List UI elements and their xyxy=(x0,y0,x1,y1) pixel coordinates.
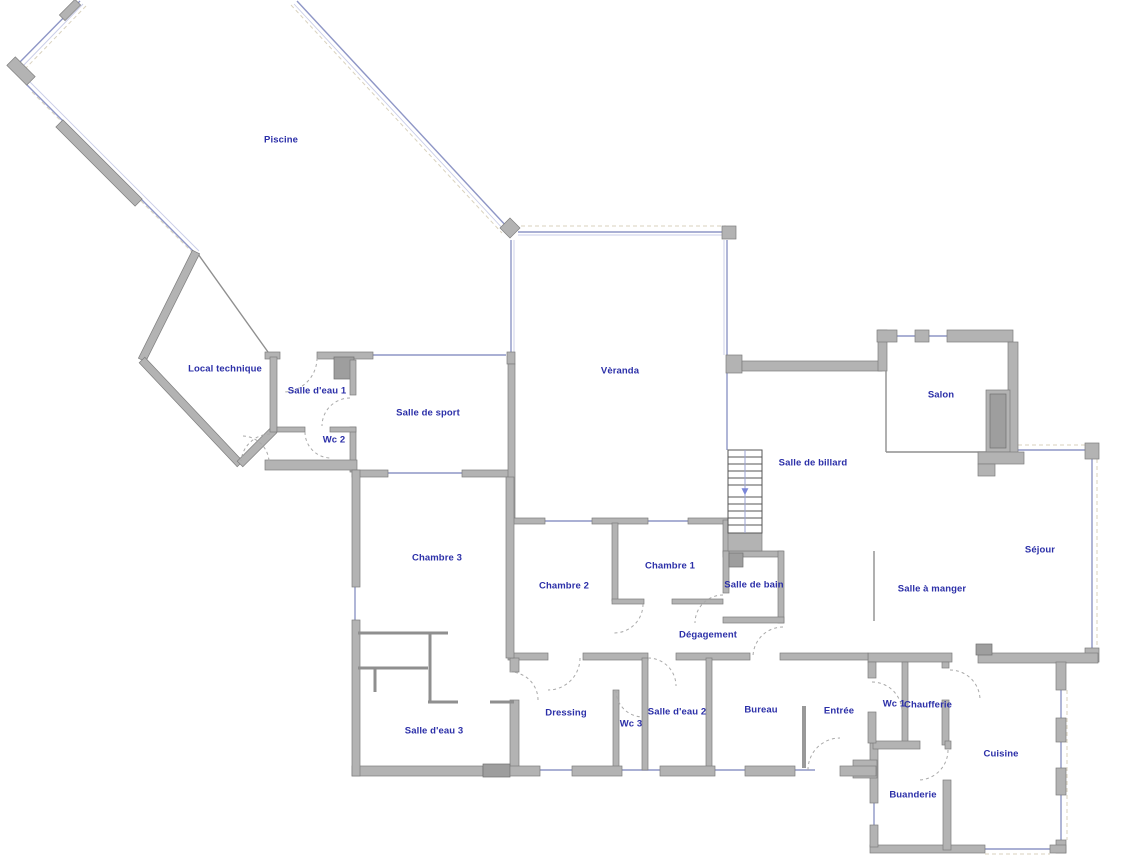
floor-plan-drawing: ▼ xyxy=(0,0,1121,859)
room-label-chambre-3: Chambre 3 xyxy=(412,553,462,564)
stairs-down-arrow-icon: ▼ xyxy=(742,487,749,497)
staircase: ▼ xyxy=(728,450,762,533)
room-label-salle-deau-1: Salle d'eau 1 xyxy=(288,386,346,397)
room-label-buanderie: Buanderie xyxy=(889,790,936,801)
room-label-salon: Salon xyxy=(928,390,954,401)
room-label-bureau: Bureau xyxy=(744,705,777,716)
room-label-entree: Entrée xyxy=(824,706,854,717)
room-label-sejour: Séjour xyxy=(1025,545,1055,556)
room-label-wc-3: Wc 3 xyxy=(620,719,643,730)
room-label-cuisine: Cuisine xyxy=(983,749,1018,760)
room-label-salle-deau-2: Salle d'eau 2 xyxy=(648,707,706,718)
room-label-salle-de-billard: Salle de billard xyxy=(779,458,848,469)
room-label-salle-a-manger: Salle à manger xyxy=(898,584,966,595)
walls-layer xyxy=(7,0,1099,853)
room-label-chambre-1: Chambre 1 xyxy=(645,561,695,572)
room-label-salle-deau-3: Salle d'eau 3 xyxy=(405,726,463,737)
room-label-veranda: Vèranda xyxy=(601,366,639,377)
glass-walls-layer xyxy=(17,1,1092,849)
room-label-chaufferie: Chaufferie xyxy=(904,700,952,711)
room-label-wc-1: Wc 1 xyxy=(883,699,906,710)
room-label-local-technique: Local technique xyxy=(188,364,262,375)
room-label-chambre-2: Chambre 2 xyxy=(539,581,589,592)
floor-plan: ▼ Piscine Local technique Salle d'eau 1 … xyxy=(0,0,1121,859)
room-label-dressing: Dressing xyxy=(545,708,586,719)
dashed-guides-layer xyxy=(24,5,1097,854)
room-label-salle-de-bain: Salle de bain xyxy=(724,580,783,591)
room-label-salle-de-sport: Salle de sport xyxy=(396,408,460,419)
room-label-wc-2: Wc 2 xyxy=(323,435,346,446)
room-label-degagement: Dégagement xyxy=(679,630,737,641)
room-label-piscine: Piscine xyxy=(264,135,298,146)
